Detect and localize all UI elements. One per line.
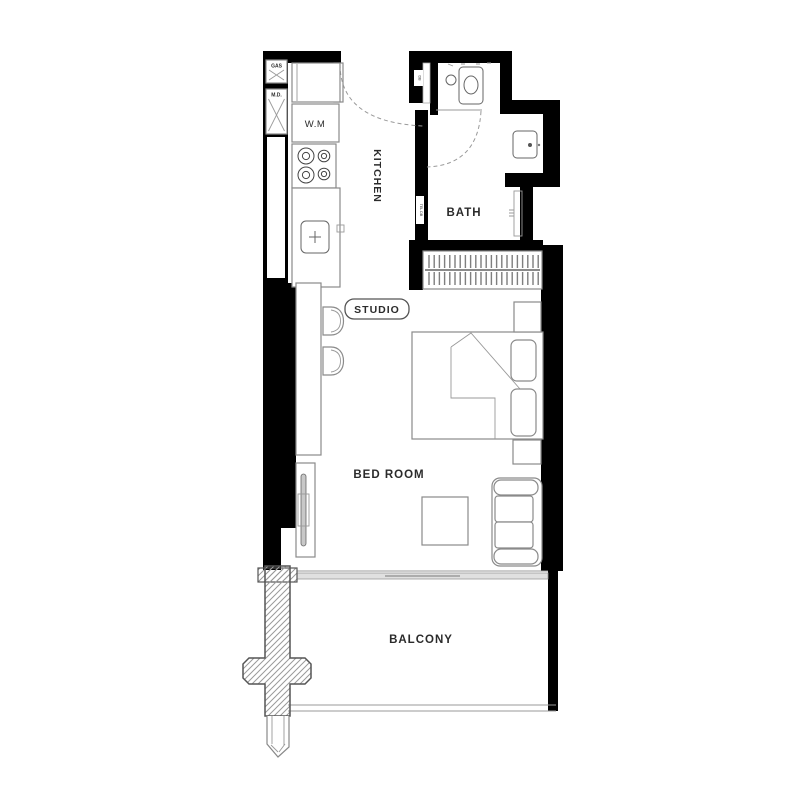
wall-right-main (541, 245, 563, 571)
pillow-2 (511, 389, 536, 436)
sofa (492, 478, 542, 566)
balcony-label: BALCONY (389, 634, 453, 646)
meter-door-label: M.D. (271, 93, 282, 99)
floor-plan-drawing: GAS M.D. W.M KITCHEN DB (0, 0, 800, 800)
duct-shaft (267, 137, 285, 278)
wall-bath-top (409, 51, 512, 63)
coffee-table (422, 497, 468, 545)
bath-label: BATH (446, 207, 481, 219)
sofa-armrest-bottom (494, 549, 538, 564)
studio-area: STUDIO (296, 283, 409, 455)
sofa-armrest-top (494, 480, 538, 495)
entry-door-jamb (423, 63, 430, 103)
structural-column (243, 566, 311, 757)
wall-wardrobe-top (415, 240, 543, 251)
towel-rail-ticks-icon (509, 210, 514, 216)
gas-meter-label: GAS (271, 64, 283, 70)
service-shafts: GAS M.D. (266, 60, 287, 278)
studio-label: STUDIO (354, 304, 400, 316)
shower-room (513, 131, 540, 158)
stove (292, 144, 336, 188)
pillow-1 (511, 340, 536, 381)
bedroom: BED ROOM (296, 302, 543, 566)
sofa-cushion-1 (495, 496, 533, 522)
shower-tray (513, 131, 537, 158)
kitchen: W.M KITCHEN (292, 63, 383, 287)
bath-room: TEL DB BATH (416, 191, 522, 236)
nightstand-bottom (513, 440, 541, 464)
tv-icon (301, 474, 306, 546)
nightstand-top (514, 302, 541, 332)
washbasin (446, 75, 456, 85)
column-tail-shape (267, 716, 289, 757)
wall-bath-left (415, 110, 428, 247)
bedroom-label: BED ROOM (353, 469, 424, 481)
shower-drain-icon (528, 143, 532, 147)
kitchen-label: KITCHEN (371, 149, 383, 203)
wall-entry-pier (430, 63, 438, 115)
wall-balcony-right (548, 571, 558, 711)
sliding-door (258, 568, 548, 582)
kitchen-cabinet (292, 63, 340, 102)
washing-machine-label: W.M (305, 119, 326, 130)
shower-dot-icon (538, 144, 540, 146)
wardrobe (423, 251, 542, 289)
column-cross-shape (243, 566, 311, 716)
bath-door-swing-arc (427, 111, 481, 167)
wall-accessory-icons (448, 63, 491, 66)
wall-notch-white (281, 528, 297, 570)
wall-left-lower (263, 283, 296, 570)
toilet (459, 67, 483, 104)
duct-bath-label: TEL DB (419, 204, 423, 217)
floor-plan-page: GAS M.D. W.M KITCHEN DB (0, 0, 800, 800)
duct-entry-label: DB (418, 76, 422, 82)
wall-shower-bottom (505, 173, 558, 187)
balcony: BALCONY (288, 634, 556, 711)
desk-counter (296, 283, 321, 455)
sofa-cushion-2 (495, 522, 533, 548)
toilet-bowl-icon (464, 76, 478, 94)
wall-wardrobe-left (409, 240, 423, 290)
